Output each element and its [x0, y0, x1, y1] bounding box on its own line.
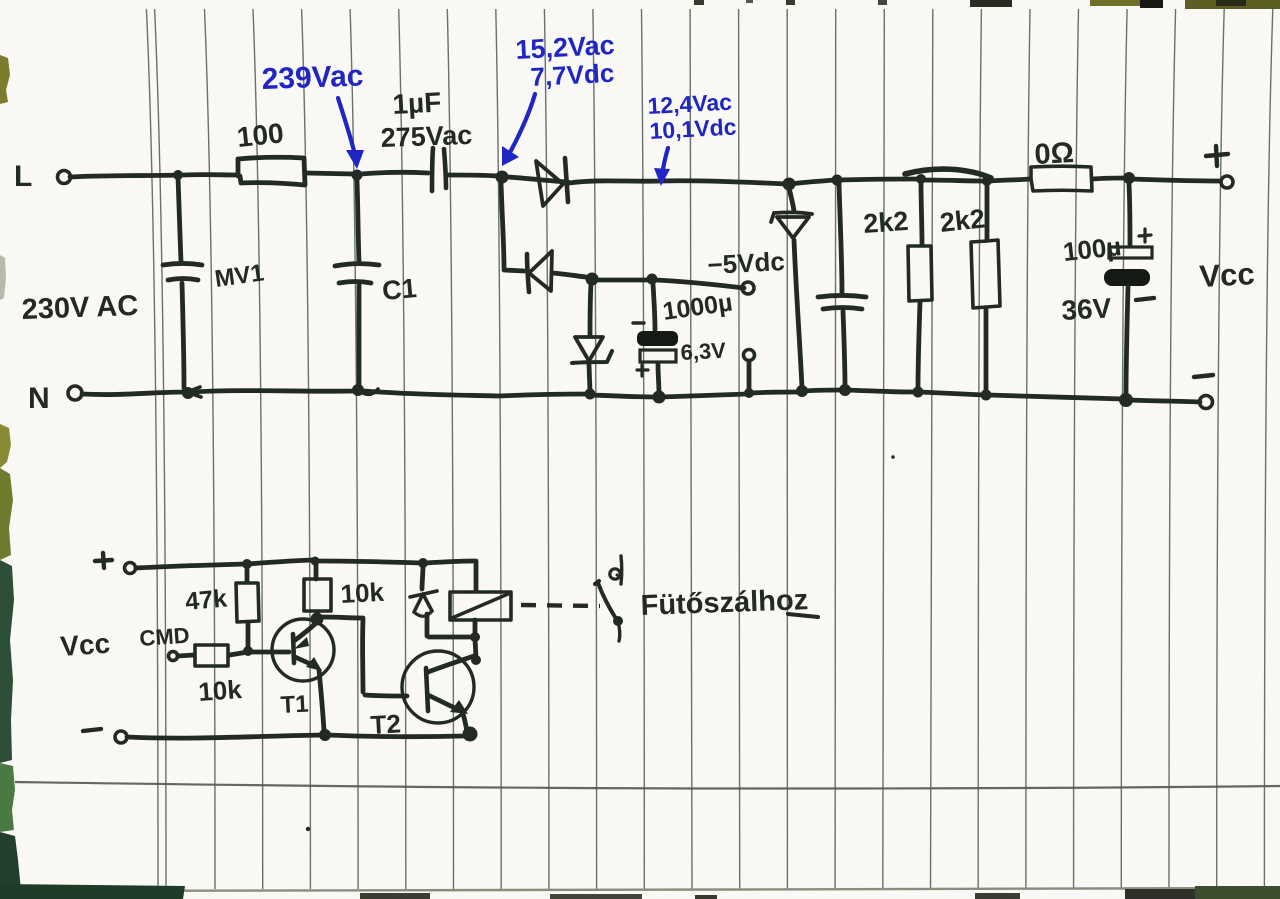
svg-text:T2: T2: [370, 708, 402, 740]
svg-text:239Vac: 239Vac: [261, 59, 364, 96]
svg-text:230V AC: 230V AC: [21, 290, 139, 326]
svg-text:0Ω: 0Ω: [1034, 137, 1075, 171]
svg-text:L: L: [14, 160, 32, 193]
svg-text:N: N: [28, 382, 50, 415]
svg-text:6,3V: 6,3V: [680, 338, 727, 365]
svg-text:−5Vdc: −5Vdc: [707, 246, 786, 280]
svg-text:Fütőszálhoz: Fütőszálhoz: [640, 584, 809, 622]
svg-text:7,7Vdc: 7,7Vdc: [530, 58, 615, 92]
svg-text:100: 100: [235, 117, 285, 153]
svg-text:10k: 10k: [340, 577, 385, 609]
svg-text:CMD: CMD: [139, 623, 191, 651]
svg-text:275Vac: 275Vac: [380, 120, 473, 153]
svg-text:C1: C1: [381, 273, 418, 306]
svg-text:100µ: 100µ: [1061, 231, 1122, 267]
svg-text:Vcc: Vcc: [1199, 256, 1256, 294]
svg-text:36V: 36V: [1061, 292, 1113, 326]
svg-text:T1: T1: [280, 691, 309, 719]
svg-text:10k: 10k: [197, 674, 243, 707]
svg-text:2k2: 2k2: [938, 203, 986, 238]
svg-text:2k2: 2k2: [862, 206, 909, 239]
svg-text:10,1Vdc: 10,1Vdc: [649, 113, 737, 144]
svg-text:Vcc: Vcc: [59, 628, 111, 662]
svg-text:1µF: 1µF: [392, 86, 442, 120]
svg-text:47k: 47k: [184, 584, 228, 616]
